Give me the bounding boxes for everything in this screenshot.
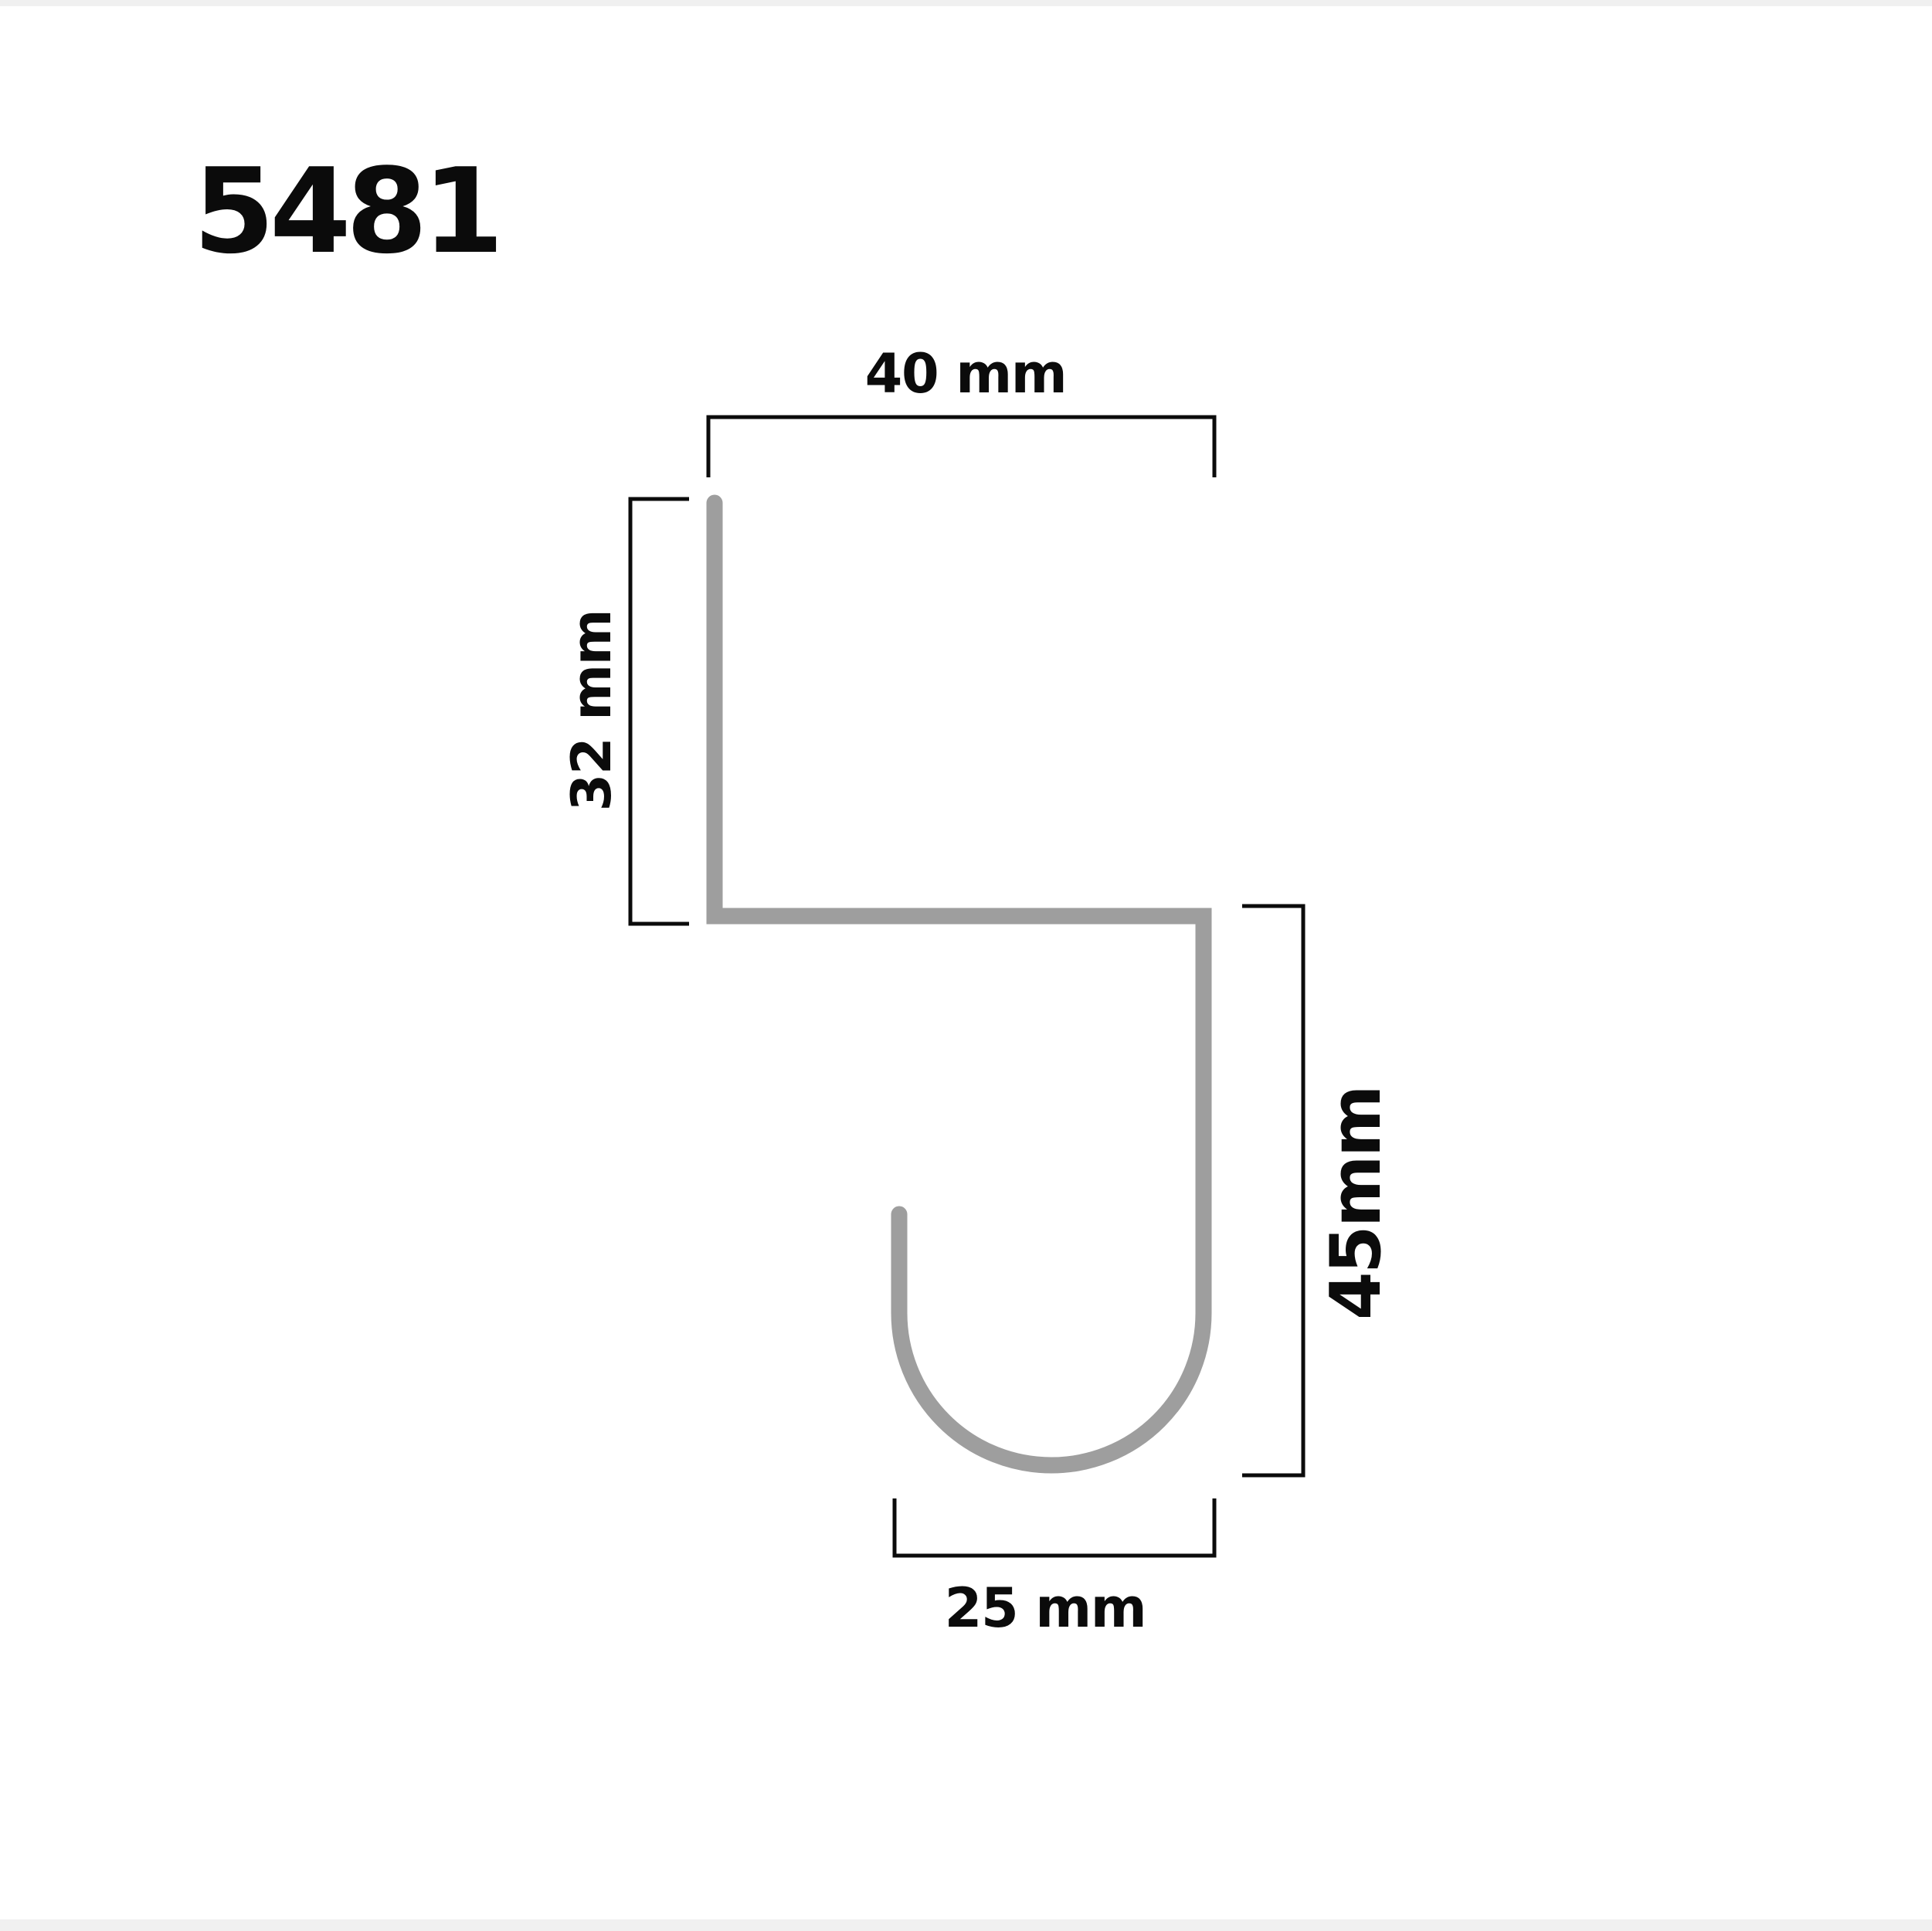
hook-profile-drawing [0,0,1932,1931]
dim-bracket-right-height [1242,906,1303,1475]
dim-bracket-left-height [630,499,689,924]
dim-label-bottom-width: 25 mm [945,1581,1146,1635]
dim-label-left-height: 32 mm [565,610,619,812]
dim-label-right-height: 45mm [1322,1087,1391,1320]
page-edge-strip-bottom [0,1919,1932,1931]
page: 5481 40 mm 32 mm 45mm 25 mm [0,0,1932,1931]
dim-label-top-width: 40 mm [865,347,1067,401]
hook-profile-path [715,503,1204,1465]
dim-bracket-bottom-width [895,1498,1214,1556]
dim-bracket-top-width [708,417,1214,477]
